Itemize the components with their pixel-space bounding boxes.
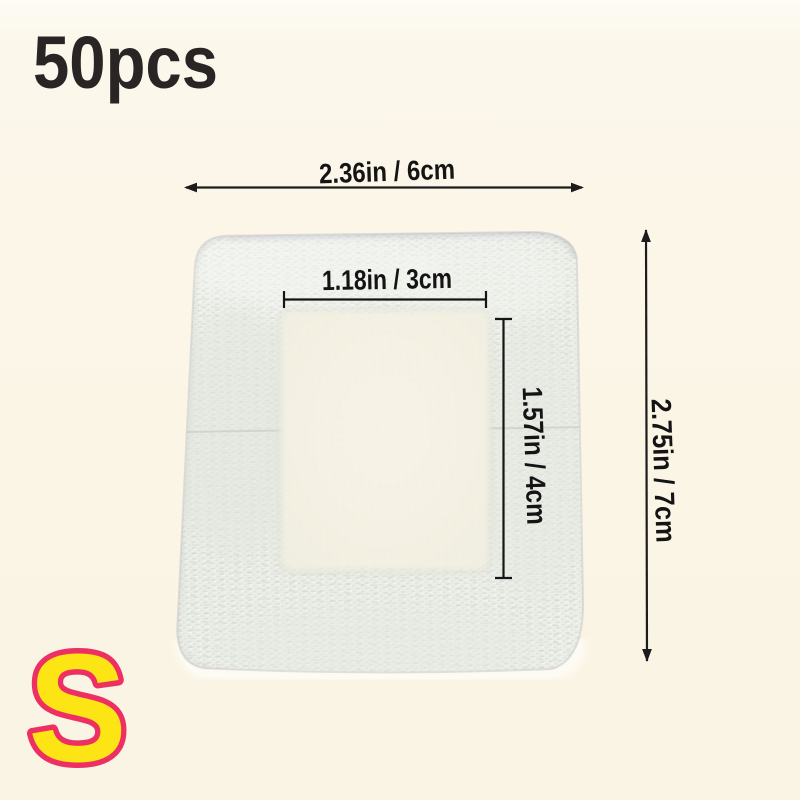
svg-text:1.18in / 3cm: 1.18in / 3cm [322,263,453,296]
svg-text:2.36in / 6cm: 2.36in / 6cm [318,154,455,190]
svg-text:50pcs: 50pcs [33,21,218,104]
svg-text:S: S [28,622,127,794]
svg-text:1.57in / 4cm: 1.57in / 4cm [517,386,553,525]
svg-text:2.75in / 7cm: 2.75in / 7cm [645,398,681,543]
